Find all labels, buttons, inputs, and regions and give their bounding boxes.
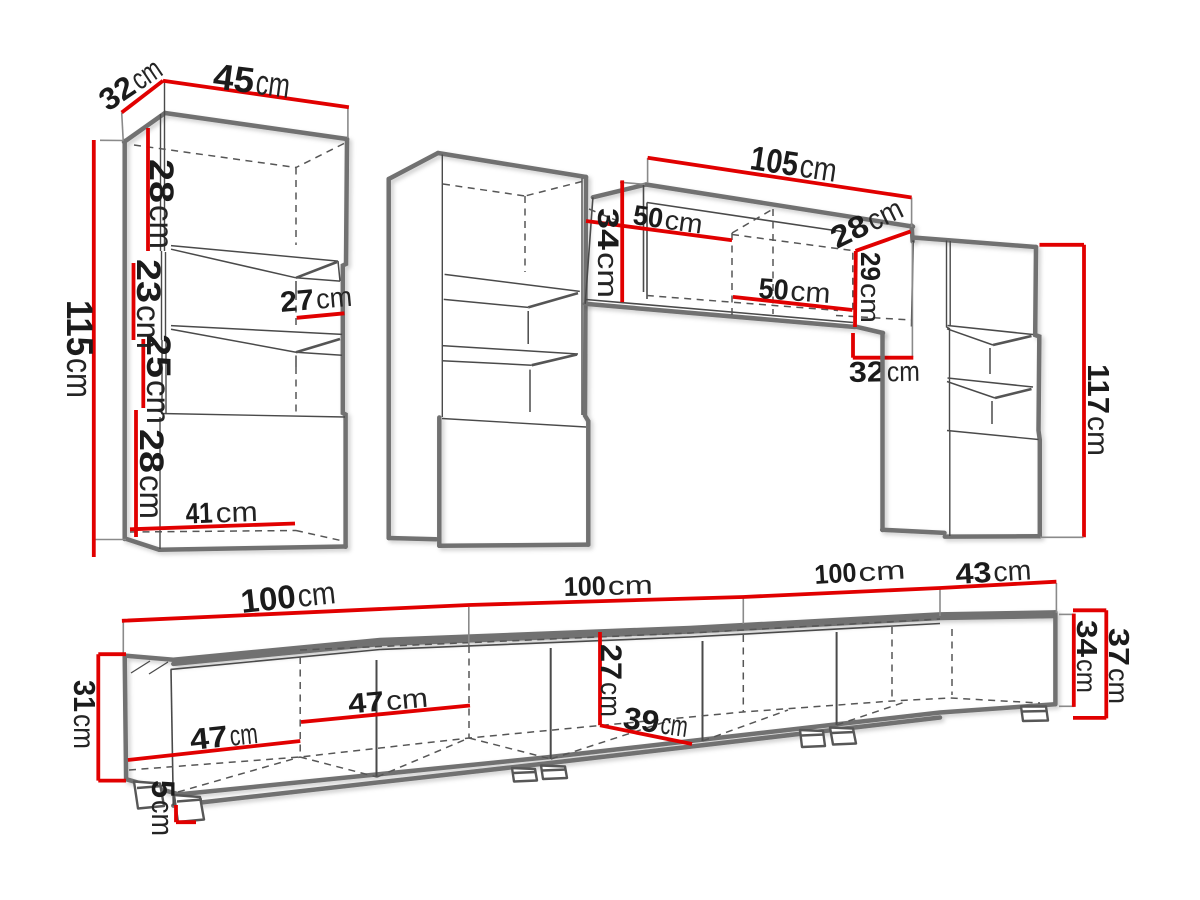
- svg-text:27: 27: [279, 284, 316, 319]
- svg-text:cm: cm: [992, 554, 1032, 587]
- svg-text:cm: cm: [855, 283, 885, 323]
- svg-text:cm: cm: [145, 800, 180, 836]
- svg-text:28: 28: [132, 429, 170, 473]
- svg-text:cm: cm: [790, 275, 832, 309]
- svg-text:45: 45: [211, 55, 257, 101]
- svg-text:50: 50: [631, 199, 665, 234]
- svg-text:cm: cm: [315, 281, 354, 315]
- svg-text:23: 23: [129, 259, 167, 303]
- svg-text:cm: cm: [857, 554, 906, 587]
- svg-text:cm: cm: [228, 718, 259, 753]
- svg-text:50: 50: [758, 273, 790, 307]
- svg-text:29: 29: [855, 252, 886, 281]
- svg-text:cm: cm: [591, 252, 623, 298]
- svg-text:5: 5: [145, 780, 181, 798]
- svg-text:105: 105: [748, 139, 801, 184]
- svg-text:39: 39: [621, 700, 662, 740]
- svg-text:28: 28: [142, 159, 180, 203]
- svg-text:cm: cm: [67, 714, 100, 749]
- svg-text:cm: cm: [1071, 659, 1102, 693]
- svg-text:cm: cm: [140, 380, 177, 424]
- svg-text:32: 32: [849, 356, 886, 389]
- svg-text:cm: cm: [887, 356, 921, 388]
- svg-text:117: 117: [1081, 364, 1116, 414]
- svg-text:cm: cm: [797, 147, 839, 189]
- svg-text:cm: cm: [143, 205, 180, 249]
- svg-text:cm: cm: [659, 708, 690, 744]
- svg-text:cm: cm: [215, 496, 258, 528]
- svg-text:cm: cm: [663, 205, 705, 240]
- svg-text:37: 37: [1102, 628, 1134, 666]
- svg-text:cm: cm: [59, 358, 100, 398]
- svg-text:cm: cm: [1103, 668, 1134, 704]
- svg-text:25: 25: [139, 334, 177, 378]
- svg-text:43: 43: [954, 557, 992, 591]
- svg-text:41: 41: [185, 498, 213, 531]
- svg-text:cm: cm: [296, 574, 338, 614]
- svg-text:27: 27: [594, 644, 627, 680]
- svg-text:cm: cm: [1081, 416, 1114, 456]
- svg-text:47: 47: [347, 685, 386, 719]
- svg-text:cm: cm: [385, 683, 429, 717]
- svg-text:34: 34: [1070, 620, 1102, 657]
- svg-text:47: 47: [188, 720, 229, 757]
- svg-text:100: 100: [814, 557, 858, 590]
- svg-text:31: 31: [67, 680, 102, 712]
- svg-text:115: 115: [59, 300, 100, 356]
- svg-text:cm: cm: [594, 682, 626, 717]
- svg-text:cm: cm: [607, 570, 653, 601]
- svg-text:cm: cm: [133, 475, 170, 519]
- svg-text:34: 34: [591, 208, 624, 250]
- svg-text:100: 100: [563, 571, 606, 602]
- svg-text:100: 100: [239, 577, 298, 620]
- svg-text:cm: cm: [254, 63, 293, 106]
